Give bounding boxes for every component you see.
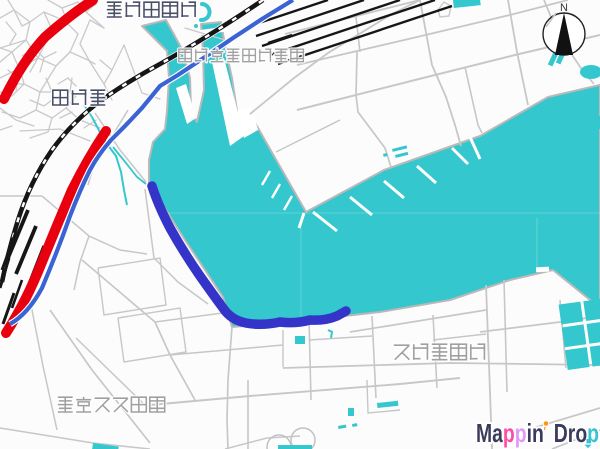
svg-text:N: N: [560, 2, 568, 14]
svg-text:Mappin' Drop: Mappin' Drop: [476, 418, 599, 448]
